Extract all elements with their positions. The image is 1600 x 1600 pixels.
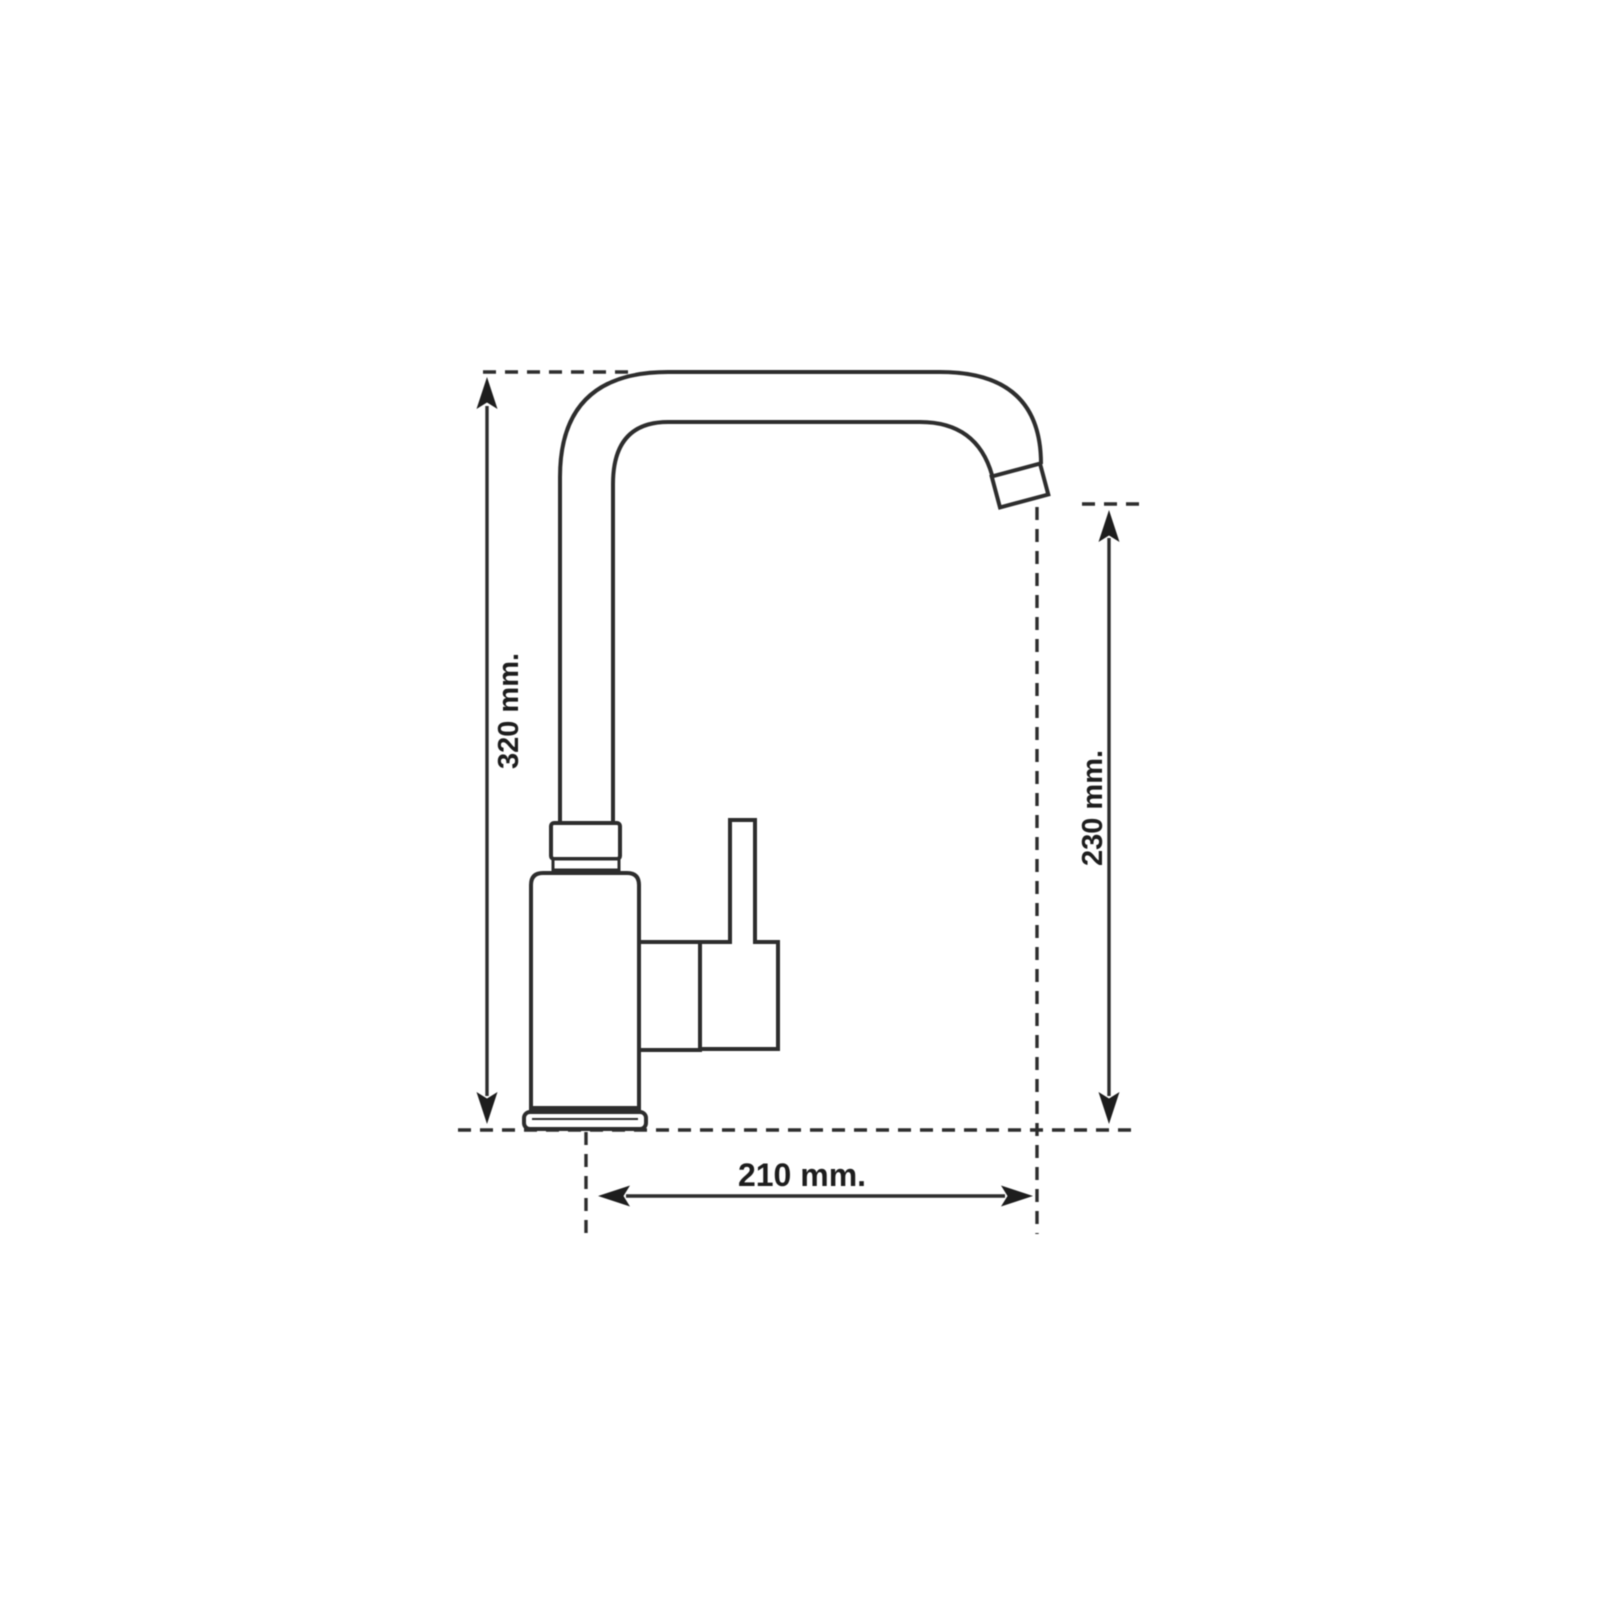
svg-text:320 mm.: 320 mm. xyxy=(493,653,525,769)
svg-text:230 mm.: 230 mm. xyxy=(1077,750,1109,866)
svg-text:210 mm.: 210 mm. xyxy=(738,1157,866,1193)
